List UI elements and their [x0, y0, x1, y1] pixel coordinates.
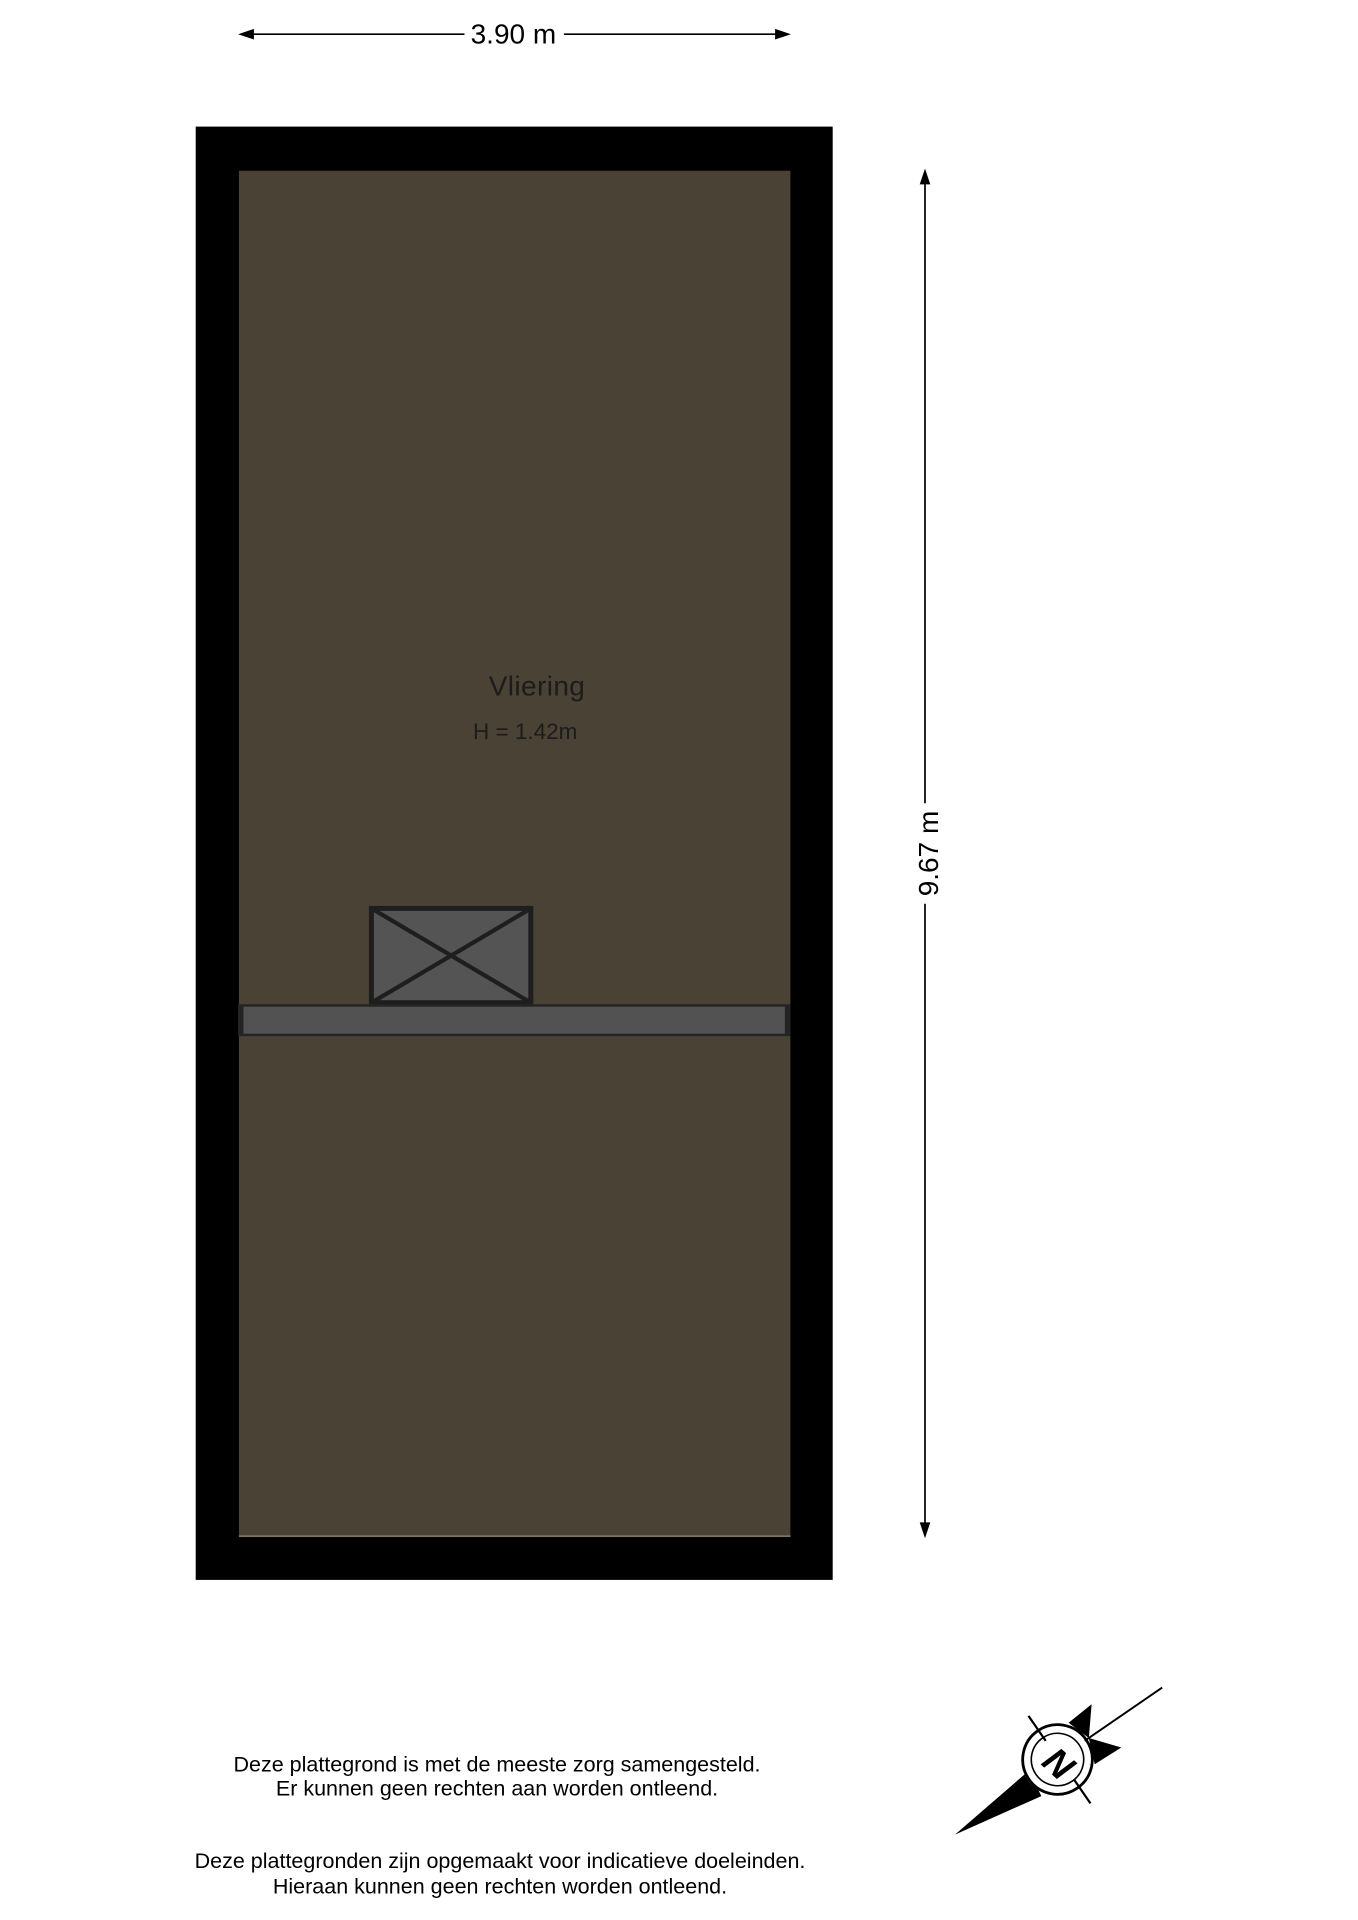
- svg-text:Deze plattegrond is met de mee: Deze plattegrond is met de meeste zorg s…: [233, 1752, 760, 1776]
- svg-text:9.67 m: 9.67 m: [913, 811, 944, 897]
- svg-text:Vliering: Vliering: [489, 671, 586, 702]
- svg-text:Hieraan kunnen geen rechten wo: Hieraan kunnen geen rechten worden ontle…: [273, 1875, 727, 1899]
- svg-text:3.90 m: 3.90 m: [471, 19, 557, 50]
- svg-text:H = 1.42m: H = 1.42m: [473, 719, 577, 744]
- svg-text:Er kunnen geen rechten aan wor: Er kunnen geen rechten aan worden ontlee…: [276, 1776, 718, 1800]
- svg-text:Deze plattegronden zijn opgema: Deze plattegronden zijn opgemaakt voor i…: [195, 1849, 806, 1873]
